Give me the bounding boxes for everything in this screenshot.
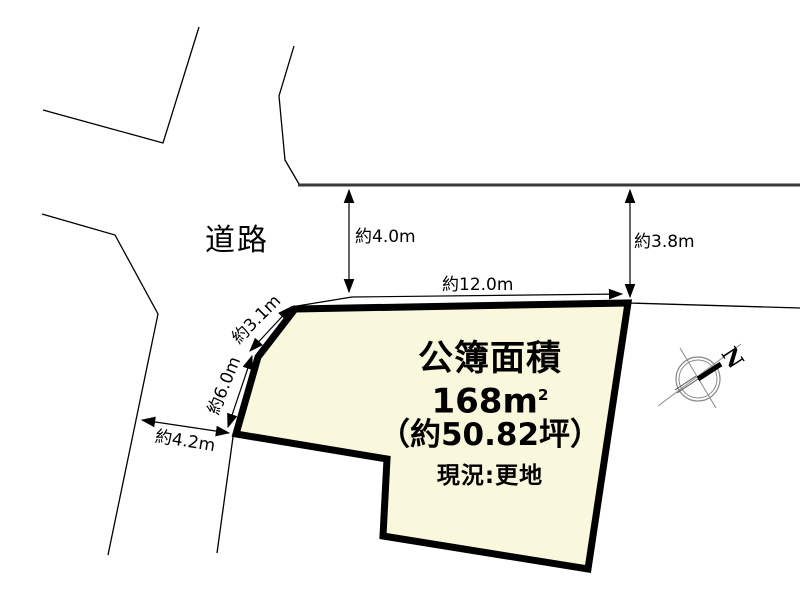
land-plot-diagram: 道路 約4.0m 約3.8m 約12.0m 約3.1m 約6.0m 約4.2m … xyxy=(0,0,800,600)
dimension-label-road-width-3-8m: 約3.8m xyxy=(634,234,695,251)
road-boundary-upper-middle xyxy=(279,46,299,184)
parcel-area-exponent: 2 xyxy=(538,386,549,404)
road-label: 道路 xyxy=(205,226,269,256)
parcel-area-tsubo: （約50.82坪） xyxy=(330,418,650,453)
road-boundary-below-parcel xyxy=(217,437,233,553)
compass-north-needle xyxy=(698,364,721,379)
parcel-area-value: 168m2 xyxy=(330,378,650,418)
parcel-area-unit: m xyxy=(502,381,537,421)
plot-plan-canvas xyxy=(0,0,800,600)
road-boundary-lower-left xyxy=(42,214,158,555)
boundary-line-right-of-parcel xyxy=(628,303,800,308)
parcel-info-block: 公簿面積 168m2 （約50.82坪） 現況:更地 xyxy=(330,340,650,489)
parcel-area-title: 公簿面積 xyxy=(330,340,650,378)
dimension-label-road-width-4-0m: 約4.0m xyxy=(355,229,416,246)
parcel-current-status: 現況:更地 xyxy=(330,463,650,489)
parcel-area-number: 168 xyxy=(431,381,502,421)
road-boundary-upper-left-v xyxy=(43,27,199,143)
dimension-label-frontage-12-0m: 約12.0m xyxy=(442,277,513,294)
